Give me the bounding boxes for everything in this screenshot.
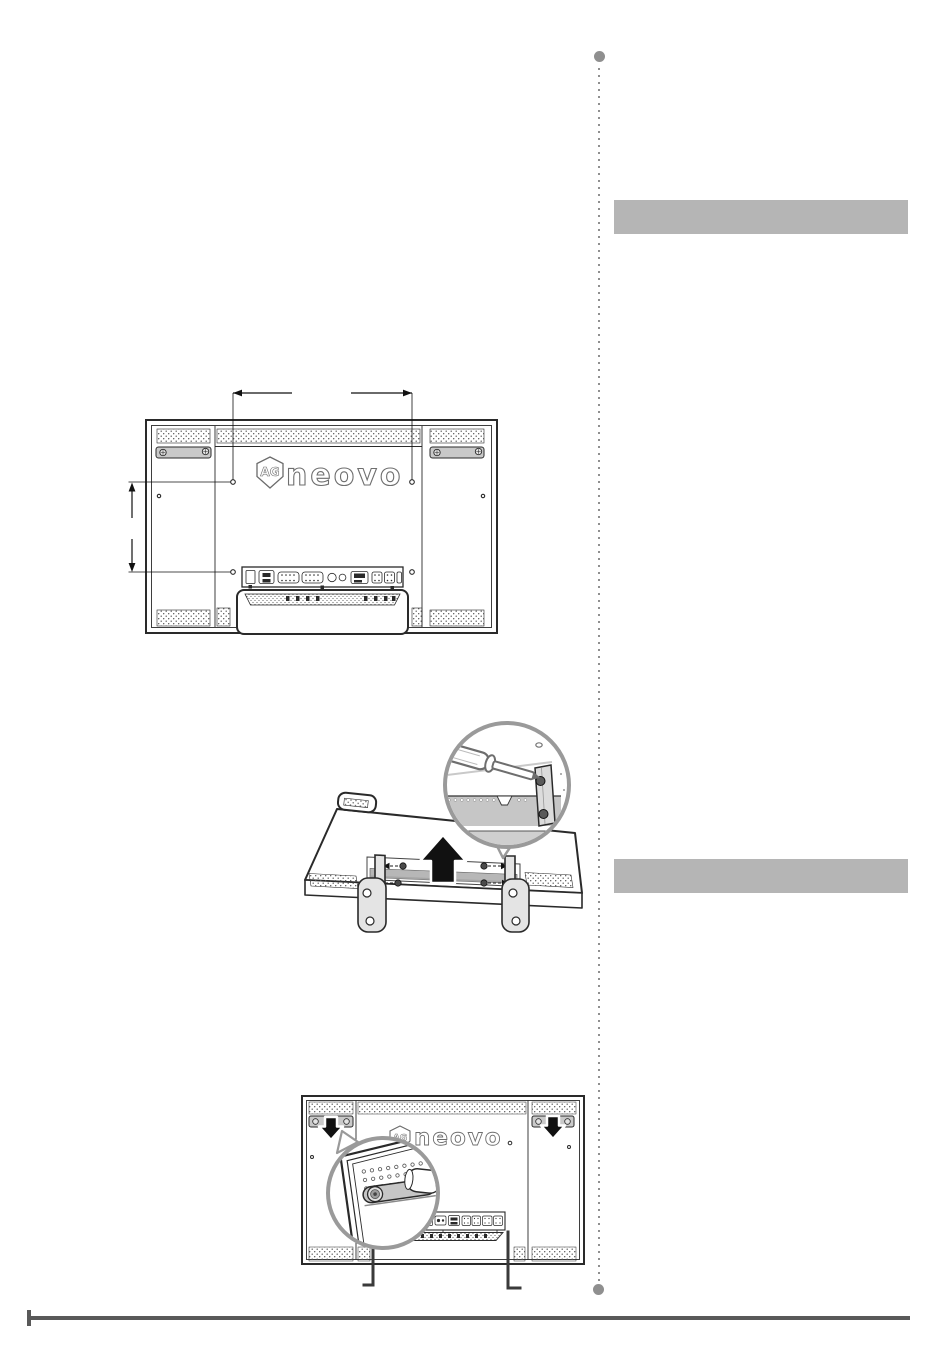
section-heading-bar-2: [614, 859, 908, 893]
screw-icon: [539, 810, 548, 819]
manual-page: AG neovo: [0, 0, 950, 1360]
separator-bottom-dot-icon: [593, 1284, 604, 1295]
logo-name-text: neovo: [414, 1125, 503, 1151]
stand-strip: [413, 1233, 503, 1241]
diagram-attach-stand: [292, 712, 592, 937]
carry-handle: [337, 792, 377, 813]
dotted-separator: [598, 68, 600, 1284]
logo-name-text: neovo: [286, 458, 403, 493]
diagram-rear-dimensions: AG neovo: [120, 385, 500, 640]
stand-base: [237, 590, 408, 634]
separator-top-dot-icon: [594, 51, 605, 62]
connector-panel: [242, 567, 403, 590]
diagram-rear-magnified-handle: AG neovo: [296, 1088, 588, 1300]
logo-badge-text: AG: [260, 465, 279, 479]
section-heading-bar-1: [614, 200, 908, 234]
footer-rule: [27, 1316, 910, 1320]
